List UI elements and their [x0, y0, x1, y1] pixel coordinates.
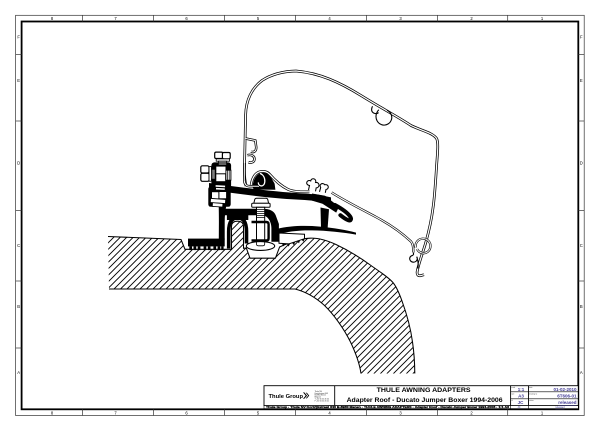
- svg-text:A3: A3: [518, 394, 524, 399]
- svg-text:Thule Group: Thule Group: [269, 394, 304, 400]
- svg-text:JC: JC: [518, 400, 525, 405]
- svg-text:id: id: [511, 400, 512, 402]
- svg-text:D: D: [580, 160, 583, 165]
- svg-text:1:1: 1:1: [518, 387, 525, 392]
- svg-text:E: E: [17, 78, 20, 83]
- svg-text:B: B: [17, 304, 20, 309]
- svg-text:THULE AWNING ADAPTERS: THULE AWNING ADAPTERS: [377, 388, 471, 394]
- svg-text:F: F: [580, 34, 583, 39]
- svg-text:C: C: [580, 243, 583, 248]
- svg-text:released: released: [558, 400, 577, 405]
- svg-text:C: C: [17, 243, 20, 248]
- svg-text:B: B: [580, 304, 583, 309]
- svg-text:released: released: [555, 406, 565, 409]
- svg-text:A: A: [17, 370, 20, 375]
- svg-text:drawing no: drawing no: [529, 393, 537, 395]
- svg-text:Thule Group · Thule NV Kortrij: Thule Group · Thule NV Kortrijkstraat 34…: [266, 405, 509, 409]
- svg-text:A: A: [580, 370, 583, 375]
- svg-text:JC: JC: [518, 406, 521, 409]
- svg-text:Adapter Roof - Ducato Jumper B: Adapter Roof - Ducato Jumper Boxer 1994-…: [347, 397, 503, 404]
- svg-text:size: size: [511, 393, 514, 395]
- svg-text:01-02-2010: 01-02-2010: [553, 387, 577, 392]
- svg-text:6T606-01: 6T606-01: [557, 394, 577, 399]
- svg-text:F +32 56 52 45 01: F +32 56 52 45 01: [315, 400, 329, 402]
- svg-text:D: D: [17, 160, 20, 165]
- svg-text:scale: scale: [511, 387, 515, 389]
- svg-text:F: F: [17, 34, 20, 39]
- svg-text:E: E: [580, 78, 583, 83]
